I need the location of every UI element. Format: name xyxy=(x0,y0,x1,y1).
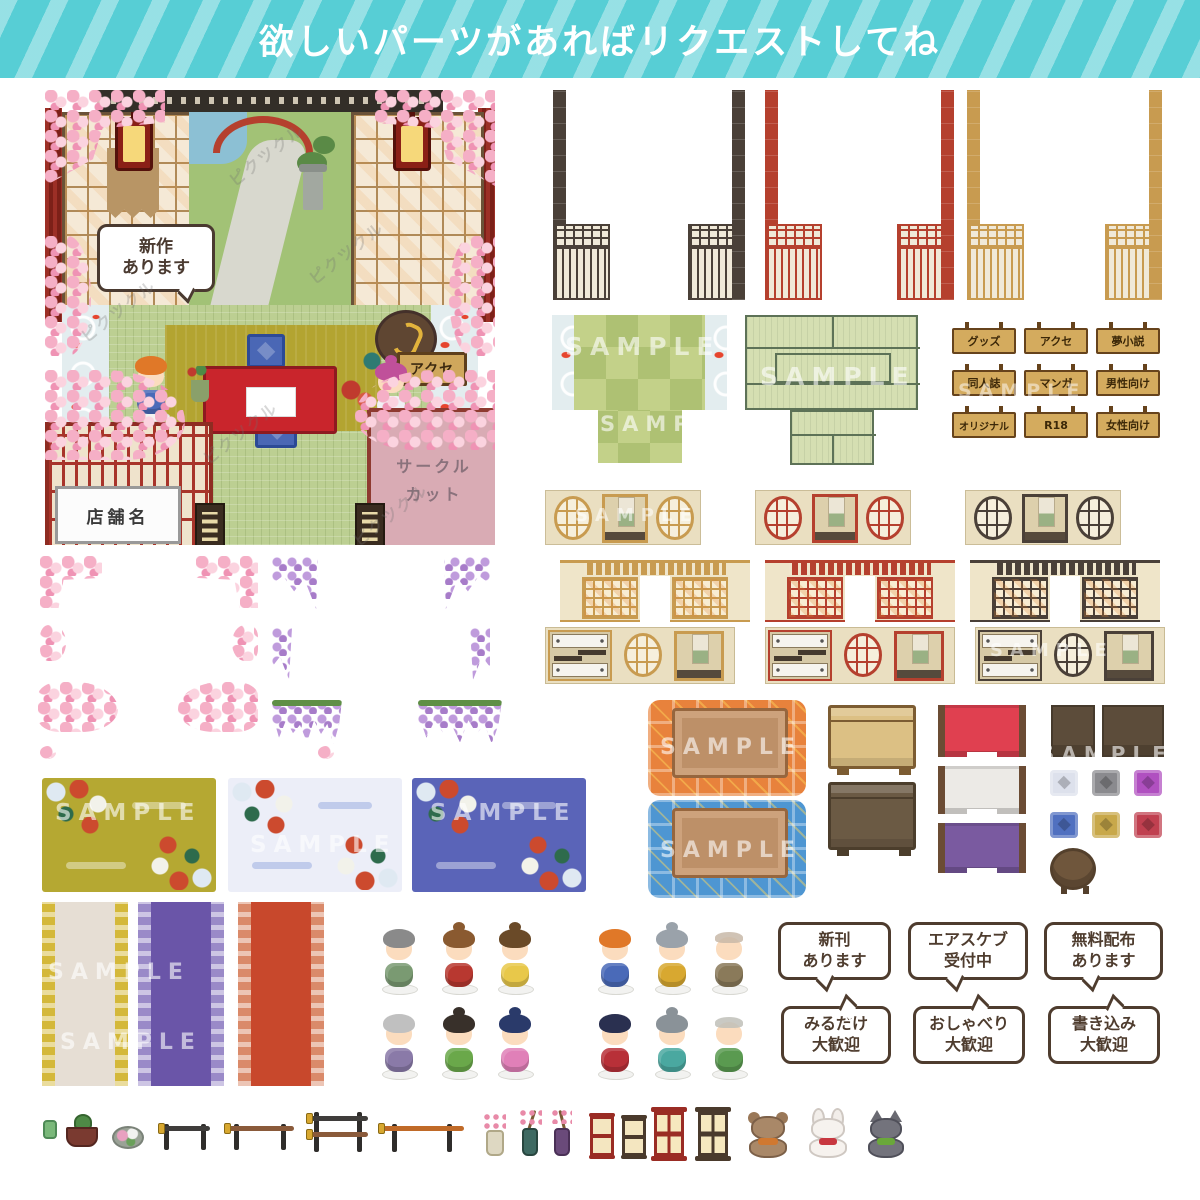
round-window xyxy=(764,496,802,540)
shoji-screen xyxy=(672,577,728,619)
cloud-motif xyxy=(318,802,372,809)
table-sign-blank xyxy=(246,387,296,417)
sword-hilt xyxy=(158,1123,165,1134)
checkered-tatami-extension xyxy=(598,410,682,463)
tatami-koi-pond xyxy=(552,315,727,463)
flower-motif xyxy=(514,830,584,890)
header-banner: 欲しいパーツがあればリクエストしてね xyxy=(0,0,1200,78)
wall-pillar-red-left xyxy=(765,90,822,300)
pillar-post xyxy=(941,90,954,300)
hanging-scroll xyxy=(692,634,709,664)
hanging-scroll xyxy=(1122,634,1139,664)
zabuton-gray xyxy=(1092,770,1120,796)
round-window xyxy=(974,496,1012,540)
shoji-screen xyxy=(992,577,1048,619)
pond-strip-right xyxy=(705,315,727,410)
alcove-floor xyxy=(1025,532,1065,540)
character-grandma-green xyxy=(377,925,421,997)
character-body xyxy=(601,1048,629,1072)
character-body xyxy=(658,1048,686,1072)
tatami-bordered xyxy=(745,315,918,465)
rabbit-head xyxy=(811,1118,845,1140)
shop-name-label: 店舗名 xyxy=(87,503,150,528)
round-window xyxy=(866,496,904,540)
character-girl-pink xyxy=(493,1010,537,1082)
cloud-motif xyxy=(502,802,556,809)
character-body xyxy=(445,963,473,987)
sword-stand-black xyxy=(158,1120,212,1152)
sakura-tip xyxy=(318,746,334,759)
pillar-post xyxy=(1149,90,1162,300)
cat-head xyxy=(870,1118,902,1140)
andon-brown xyxy=(622,1118,646,1156)
character-hair xyxy=(443,929,475,948)
bear-scarf xyxy=(758,1138,778,1145)
flower-motif xyxy=(230,780,300,840)
sword-hilt xyxy=(306,1113,313,1124)
kotatsu-blue xyxy=(648,800,806,898)
lantern-red xyxy=(654,1112,684,1156)
bubble-line1: 新作 xyxy=(139,237,173,258)
wall-roundwindow-gold xyxy=(545,490,701,545)
rabbit-plush xyxy=(806,1108,850,1158)
bubble-free-handout: 無料配布 あります xyxy=(1044,922,1163,980)
bear-head xyxy=(751,1116,785,1140)
screen-purple xyxy=(938,823,1026,873)
runner-purple xyxy=(138,902,224,1086)
character-boy-red xyxy=(593,1010,637,1082)
sakura-side-left xyxy=(40,625,66,661)
mat-box xyxy=(775,353,891,383)
kotatsu-tabletop xyxy=(672,708,788,778)
chest-brown xyxy=(828,782,916,850)
character-body xyxy=(385,963,413,987)
alcove-floor xyxy=(677,670,721,678)
hanging-sign-manga: マンガ xyxy=(1024,370,1088,396)
tatami-extension xyxy=(790,410,874,465)
red-display-table xyxy=(203,366,337,434)
wall-doorway-dark xyxy=(970,560,1160,622)
cabinet-panel xyxy=(772,663,828,677)
cloud-motif xyxy=(132,802,186,809)
bubble-line: 書き込み xyxy=(1072,1014,1136,1035)
sign-label: アクセ xyxy=(1040,333,1072,349)
kotatsu-orange xyxy=(648,700,806,796)
flower-pot xyxy=(191,380,209,402)
sakura-corner-right xyxy=(196,556,258,608)
wisteria-corner-right xyxy=(444,557,490,609)
naginata-hilt xyxy=(378,1123,385,1134)
pond-strip-left xyxy=(552,315,574,410)
character-grandma-purple xyxy=(377,1010,421,1082)
character-girl-yellow xyxy=(493,925,537,997)
sakura-side-right xyxy=(232,625,258,661)
character-man-teal xyxy=(650,1010,694,1082)
hanging-scroll xyxy=(618,497,635,527)
naginata-shaft xyxy=(380,1126,464,1131)
hanging-scroll xyxy=(828,497,845,527)
shelf-step xyxy=(554,656,582,661)
rug-blue-floral xyxy=(412,778,586,892)
wall-roundwindow-dark xyxy=(965,490,1121,545)
character-elder-brown xyxy=(707,925,751,997)
character-elder-green xyxy=(707,1010,751,1082)
character-woman-green xyxy=(437,1010,481,1082)
character-hair xyxy=(383,929,415,948)
sakura-cluster xyxy=(449,236,495,356)
asset-sheet-canvas: 欲しいパーツがあればリクエストしてね xyxy=(0,0,1200,1200)
staggered-shelf-unit xyxy=(548,630,612,681)
wall-roundwindow-red xyxy=(755,490,911,545)
character-body xyxy=(715,963,743,987)
runner-center xyxy=(55,902,115,1086)
wisteria-side-left xyxy=(272,628,292,680)
chest-tan xyxy=(828,705,916,769)
cat-plush xyxy=(866,1110,906,1158)
hanging-sign-dream-novel: 夢小説 xyxy=(1096,328,1160,354)
lattice-wall xyxy=(553,224,610,300)
character-hair xyxy=(715,1017,743,1028)
ikebana-teal-vase xyxy=(516,1110,544,1156)
sakura-branch-left xyxy=(38,682,118,732)
hanging-sign-goods: グッズ xyxy=(952,328,1016,354)
sword-hilt xyxy=(306,1129,313,1140)
character-body xyxy=(385,1048,413,1072)
doorway-opening xyxy=(1050,576,1080,622)
transom-panel xyxy=(789,563,931,575)
alcove-floor xyxy=(897,670,941,678)
bubble-line: あります xyxy=(802,951,866,972)
wall-doorway-red xyxy=(765,560,955,622)
bubble-new-book: 新刊 あります xyxy=(778,922,891,980)
zabuton-blue xyxy=(1050,812,1078,838)
tatami-top-section xyxy=(745,315,918,410)
sword-blade xyxy=(226,1126,294,1131)
teacup xyxy=(43,1120,57,1139)
counter-wide xyxy=(1102,705,1164,757)
staggered-shelf-unit xyxy=(768,630,832,681)
character-body xyxy=(501,963,529,987)
doorway-opening xyxy=(640,576,670,622)
bubble-line: 無料配布 xyxy=(1071,930,1135,951)
garden-path xyxy=(210,140,309,305)
zabuton-white xyxy=(1050,770,1078,796)
sword-stand-double xyxy=(306,1110,370,1154)
cabinet-panel xyxy=(982,663,1038,677)
sword-stand-brown xyxy=(224,1120,296,1152)
wall-pillar-tan-right xyxy=(1105,90,1162,300)
sign-label: グッズ xyxy=(968,333,1001,349)
bubble-line: みるだけ xyxy=(804,1014,868,1035)
character-boy-blue xyxy=(593,925,637,997)
bubble-line2: あります xyxy=(122,258,190,279)
sign-label: 女性向け xyxy=(1106,417,1150,433)
character-woman-red xyxy=(437,925,481,997)
cat-scarf xyxy=(877,1138,895,1145)
vase-body xyxy=(554,1128,570,1156)
character-hair xyxy=(383,1014,415,1033)
mat-border xyxy=(747,383,920,385)
kotatsu-tabletop xyxy=(672,808,788,878)
sakura-tip xyxy=(40,746,56,759)
round-window xyxy=(844,633,882,677)
wall-pillar-dark-right xyxy=(688,90,745,300)
character-hair xyxy=(443,1014,475,1033)
shelf-step xyxy=(1008,650,1036,655)
ikebana-white-vase xyxy=(482,1114,508,1156)
new-item-speech-bubble: 新作 あります xyxy=(97,224,215,292)
ikebana-purple-vase xyxy=(550,1110,574,1156)
mat-border xyxy=(832,317,834,347)
bush xyxy=(313,136,335,154)
scroll-alcove xyxy=(674,631,724,681)
mat-border xyxy=(832,436,834,465)
character-hair xyxy=(715,932,743,943)
rug-gold-floral xyxy=(42,778,216,892)
character-hair xyxy=(499,929,531,948)
sign-label: マンガ xyxy=(1040,375,1073,391)
wisteria-garland-right xyxy=(418,700,502,746)
shoji-screen xyxy=(1082,577,1138,619)
zabuton-gold xyxy=(1092,812,1120,838)
cloud-motif xyxy=(436,862,496,869)
alcove-floor xyxy=(815,532,855,540)
zabuton-purple xyxy=(1134,770,1162,796)
blossom-sprigs xyxy=(520,1110,542,1126)
lattice-wall xyxy=(765,224,822,300)
character-man-mustard xyxy=(650,925,694,997)
bonsai-pot xyxy=(66,1114,98,1150)
lattice-wall xyxy=(967,224,1024,300)
floor-lantern xyxy=(195,503,225,545)
hanging-sign-original: オリジナル xyxy=(952,412,1016,438)
shoji-screen xyxy=(877,577,933,619)
round-window xyxy=(624,633,662,677)
scroll-alcove xyxy=(812,494,858,543)
round-window xyxy=(554,496,592,540)
transom-panel xyxy=(584,563,726,575)
runner-red xyxy=(238,902,324,1086)
sign-label: 同人誌 xyxy=(968,375,1001,391)
sword-hilt xyxy=(224,1123,231,1134)
rabbit-scarf xyxy=(819,1138,837,1145)
doorway-opening xyxy=(845,576,875,622)
sword-blade xyxy=(308,1116,368,1121)
character-hair xyxy=(499,1014,531,1033)
floor-lantern xyxy=(355,503,385,545)
staggered-shelf-unit xyxy=(978,630,1042,681)
cabinet-panel xyxy=(552,634,608,648)
bubble-line: 大歓迎 xyxy=(812,1035,860,1056)
naginata-stand xyxy=(378,1116,466,1154)
blue-cushion xyxy=(247,334,285,368)
character-body xyxy=(715,1048,743,1072)
character-body xyxy=(601,963,629,987)
vase-body xyxy=(486,1130,504,1156)
stone-lantern xyxy=(303,172,323,210)
wall-doorway-gold xyxy=(560,560,750,622)
alcove-floor xyxy=(1107,670,1151,678)
room-preview: アクセ グッズ 新作 あります 店舗名 サークル カット xyxy=(45,90,495,545)
bubble-air-sketch: エアスケブ 受付中 xyxy=(908,922,1028,980)
cabinet-panel xyxy=(982,634,1038,648)
transom-panel xyxy=(994,563,1136,575)
bubble-line: 新刊 xyxy=(818,930,850,951)
bubble-line: 大歓迎 xyxy=(945,1035,993,1056)
counter-small xyxy=(1051,705,1095,757)
wall-shelf-red xyxy=(765,627,955,684)
runner-cream xyxy=(42,902,128,1086)
flower-motif xyxy=(44,780,114,840)
sword-blade xyxy=(160,1126,210,1131)
zabuton-red xyxy=(1134,812,1162,838)
wall-pillar-red-right xyxy=(897,90,954,300)
wall-pillar-dark-left xyxy=(553,90,610,300)
bubble-line: 大歓迎 xyxy=(1080,1035,1128,1056)
shelf-step xyxy=(774,656,802,661)
cloud-motif xyxy=(252,862,312,869)
bubble-line: あります xyxy=(1071,951,1135,972)
wisteria-side-right xyxy=(470,628,490,680)
runner-center xyxy=(251,902,311,1086)
flower-motif xyxy=(330,830,400,890)
character-hair xyxy=(599,929,631,948)
hanging-sign-accessories: アクセ xyxy=(1024,328,1088,354)
character-body xyxy=(501,1048,529,1072)
character-hair xyxy=(135,356,167,375)
rug-white-floral xyxy=(228,778,402,892)
hanging-scroll xyxy=(912,634,929,664)
bubble-line: 受付中 xyxy=(944,951,992,972)
character-body xyxy=(658,963,686,987)
shoji-screen xyxy=(582,577,638,619)
sword-blade xyxy=(308,1132,368,1137)
shelf-step xyxy=(984,656,1012,661)
vase-body xyxy=(522,1128,538,1156)
bear-plush xyxy=(746,1112,790,1158)
round-window xyxy=(1076,496,1114,540)
wisteria-garland-left xyxy=(272,700,342,746)
scroll-alcove xyxy=(1104,631,1154,681)
sakura-cluster xyxy=(45,236,91,356)
blossom-sprigs xyxy=(552,1110,572,1124)
sakura-corner-left xyxy=(40,556,102,608)
bubble-line: おしゃべり xyxy=(929,1014,1009,1035)
banner-title: 欲しいパーツがあればリクエストしてね xyxy=(259,14,941,65)
hanging-sign-r18: R18 xyxy=(1024,412,1088,438)
character-body xyxy=(445,1048,473,1072)
lantern-brown xyxy=(698,1112,728,1156)
sakura-branch-right xyxy=(178,682,258,732)
temari-ball xyxy=(112,1126,144,1149)
cabinet-panel xyxy=(772,634,828,648)
shoji-screen xyxy=(787,577,843,619)
scroll-alcove xyxy=(1022,494,1068,543)
bubble-write-welcome: 書き込み 大歓迎 xyxy=(1048,1006,1160,1064)
alcove-floor xyxy=(605,532,645,540)
flower-motif xyxy=(414,780,484,840)
sign-label: 男性向け xyxy=(1106,375,1150,391)
screen-white xyxy=(938,766,1026,814)
cabinet-panel xyxy=(552,663,608,677)
flower-motif xyxy=(144,830,214,890)
sign-label: R18 xyxy=(1044,419,1068,432)
hanging-scroll xyxy=(1038,497,1055,527)
hanging-sign-for-men: 男性向け xyxy=(1096,370,1160,396)
shop-name-sign: 店舗名 xyxy=(55,486,181,544)
hanging-sign-for-women: 女性向け xyxy=(1096,412,1160,438)
bubble-line: エアスケブ xyxy=(928,930,1008,951)
shelf-step xyxy=(578,650,606,655)
shelf-step xyxy=(798,650,826,655)
mat-border xyxy=(792,434,876,436)
mat-border xyxy=(747,347,920,349)
circle-cut-line1: サークル xyxy=(396,453,472,480)
screen-red xyxy=(938,705,1026,757)
bubble-just-looking: みるだけ 大歓迎 xyxy=(781,1006,891,1064)
wisteria-corner-left xyxy=(272,557,318,609)
bubble-chat-welcome: おしゃべり 大歓迎 xyxy=(913,1006,1025,1064)
wall-pillar-tan-left xyxy=(967,90,1024,300)
character-hair xyxy=(656,929,688,948)
bonsai-planter xyxy=(66,1127,98,1147)
scroll-alcove xyxy=(894,631,944,681)
runner-center xyxy=(151,902,211,1086)
pillar-post xyxy=(732,90,745,300)
sign-label: 夢小説 xyxy=(1112,333,1145,349)
character-hair xyxy=(599,1014,631,1033)
cloud-motif xyxy=(66,862,126,869)
circle-cut-line2: カット xyxy=(405,481,462,508)
hanging-sign-doujinshi: 同人誌 xyxy=(952,370,1016,396)
character-hair xyxy=(656,1014,688,1033)
round-table xyxy=(1050,848,1096,890)
andon-red xyxy=(590,1116,614,1156)
scroll-alcove xyxy=(602,494,648,543)
wall-shelf-dark xyxy=(975,627,1165,684)
round-window xyxy=(656,496,694,540)
checkered-tatami xyxy=(574,315,705,410)
wall-shelf-gold xyxy=(545,627,735,684)
sign-label: オリジナル xyxy=(959,418,1009,433)
round-window xyxy=(1054,633,1092,677)
